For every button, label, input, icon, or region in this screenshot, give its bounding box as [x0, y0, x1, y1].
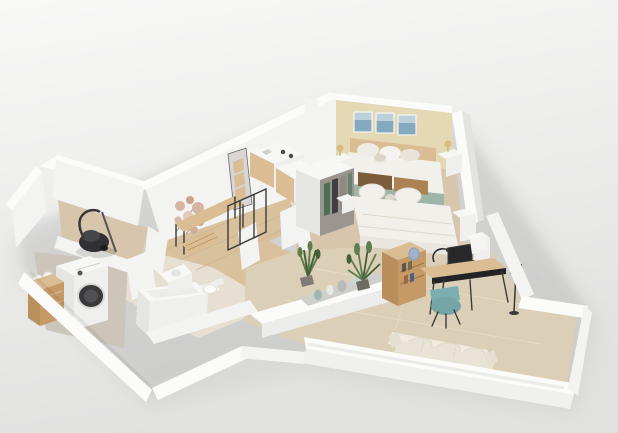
plant-leaf: [298, 247, 303, 257]
lamp-base: [509, 311, 519, 315]
pillow: [400, 149, 420, 161]
palm-leaf: [347, 254, 352, 264]
hanging-clothes: [324, 182, 330, 216]
triptych-wall-art: [354, 112, 416, 135]
washer-drum: [84, 290, 98, 303]
vacuum-top: [82, 230, 100, 242]
cooktop-burner: [281, 150, 285, 154]
hanging-clothes: [332, 178, 338, 214]
flower: [186, 196, 194, 204]
accent-pillow: [374, 154, 386, 162]
cooktop-burner: [289, 154, 293, 158]
book: [410, 273, 414, 283]
book: [408, 261, 412, 271]
plant-leaf: [308, 241, 313, 251]
vase: [338, 280, 347, 292]
plant-leaf: [316, 249, 321, 259]
toilet-bowl: [204, 285, 217, 294]
chair-seat: [431, 297, 461, 315]
washer-dial: [78, 271, 83, 276]
picture-sky: [376, 113, 394, 121]
vase: [327, 285, 334, 295]
table-lamp: [445, 141, 452, 148]
vase: [351, 277, 357, 286]
table-lamp: [337, 145, 344, 152]
blue-vase: [409, 248, 419, 260]
wardrobe-side: [296, 170, 320, 236]
palm-leaf: [366, 241, 372, 253]
sideboard-side: [382, 252, 398, 306]
book: [402, 263, 406, 273]
picture-sky: [354, 112, 372, 120]
palm-leaf: [354, 243, 360, 255]
bookcase-sideboard: [382, 242, 426, 306]
floorplan-render: [0, 0, 618, 433]
book: [404, 275, 408, 285]
picture-sky: [398, 115, 416, 123]
basin-sink: [171, 270, 181, 277]
flower: [175, 201, 185, 211]
pillow: [357, 143, 379, 157]
vacuum-wheel: [100, 245, 108, 251]
vase: [314, 290, 322, 301]
